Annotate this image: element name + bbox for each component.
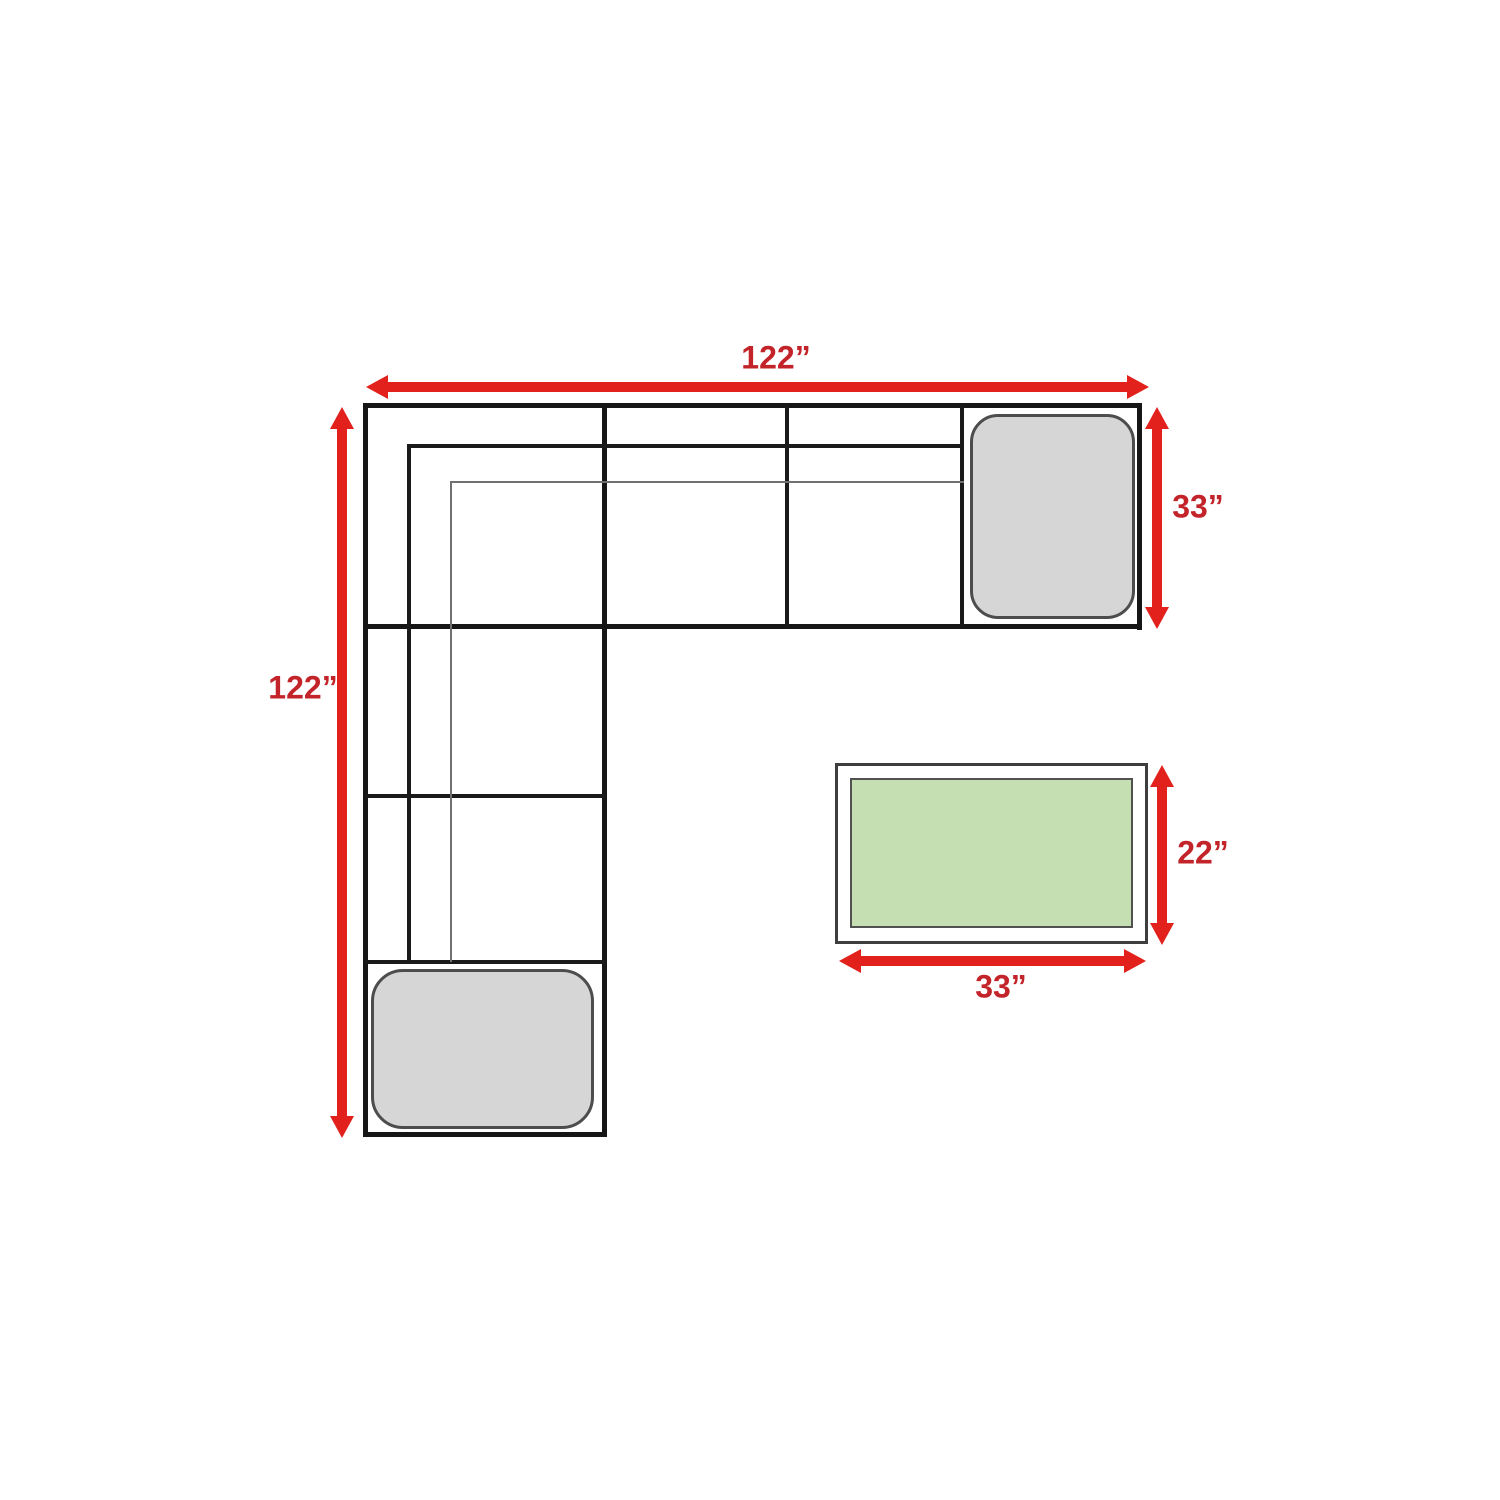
arrow-shaft — [337, 427, 347, 1118]
table-depth-label: 22” — [1177, 835, 1229, 872]
arrow-head-up-icon — [1150, 765, 1174, 787]
dimension-diagram-canvas: 122” 122” 33” 22” 33” — [0, 0, 1500, 1500]
sofa-top-edge — [363, 403, 1142, 408]
arrow-head-down-icon — [330, 1116, 354, 1138]
table-width-label: 33” — [975, 969, 1027, 1006]
corner-piece-divider — [960, 405, 964, 627]
backrest-inner-line-horizontal — [407, 444, 964, 448]
arrow-shaft — [386, 382, 1129, 392]
backrest-inner-line-vertical — [407, 444, 411, 962]
sofa-left-edge — [363, 403, 368, 1137]
sofa-bottom-edge — [363, 1132, 607, 1137]
sofa-depth-label: 122” — [268, 670, 337, 707]
sofa-width-label: 122” — [741, 340, 810, 377]
arrow-head-up-icon — [1145, 407, 1169, 429]
sofa-right-edge — [1137, 403, 1142, 630]
seat-divider-vertical-1 — [785, 405, 789, 627]
seat-edge-line-vertical — [450, 481, 452, 962]
ottoman-cushion — [371, 969, 594, 1129]
arrow-head-down-icon — [1145, 607, 1169, 629]
coffee-table-top — [850, 778, 1133, 928]
corner-depth-arrow — [1145, 407, 1169, 629]
seat-edge-line-horizontal — [450, 481, 964, 483]
sofa-width-arrow — [366, 375, 1149, 399]
sofa-depth-arrow — [330, 407, 354, 1138]
table-depth-arrow — [1150, 765, 1174, 945]
arrow-shaft — [859, 956, 1126, 966]
arrow-shaft — [1157, 785, 1167, 925]
arrow-head-right-icon — [1124, 949, 1146, 973]
seat-divider-horizontal-1 — [365, 794, 605, 798]
sofa-left-column-right-edge — [602, 403, 607, 1137]
arrow-head-left-icon — [839, 949, 861, 973]
corner-depth-label: 33” — [1172, 489, 1224, 526]
corner-seat-cushion — [970, 414, 1135, 619]
arrow-head-up-icon — [330, 407, 354, 429]
ottoman-divider — [365, 960, 605, 964]
sofa-top-section-bottom-edge — [363, 624, 1142, 629]
arrow-head-right-icon — [1127, 375, 1149, 399]
arrow-shaft — [1152, 427, 1162, 609]
arrow-head-left-icon — [366, 375, 388, 399]
arrow-head-down-icon — [1150, 923, 1174, 945]
